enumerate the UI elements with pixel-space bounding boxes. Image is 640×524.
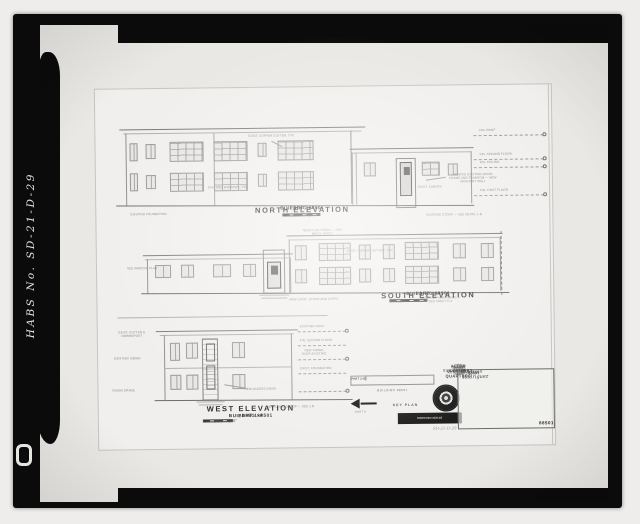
level-line: [298, 331, 346, 333]
window: [295, 245, 307, 260]
part-label: PART 1-A: [290, 205, 315, 210]
annotation: EXISTING WINDOWS, TYP.: [208, 186, 248, 190]
drawing-line: [118, 315, 328, 319]
window: [481, 243, 494, 258]
level-line: [299, 391, 347, 393]
level-label: FIN. ROOF: [479, 129, 495, 133]
datum-mark: [543, 164, 547, 168]
annotation: NEW FLUE STACK — SEE MECH. DWGS.: [303, 229, 343, 237]
window: [364, 162, 376, 176]
datum-mark: [345, 389, 349, 393]
door-pane: [404, 167, 410, 175]
window: [295, 269, 307, 283]
level-line: [473, 134, 543, 136]
datum-mark: [543, 156, 547, 160]
pencil-note: SD-21-D-29: [433, 425, 457, 430]
level-line: [298, 345, 346, 347]
annotation: REMOVE EXISTING DOOR, FRAME AND TRANSOM …: [448, 173, 498, 184]
part-label: PART 1-A: [416, 291, 441, 296]
window: [146, 175, 156, 189]
door-pane: [271, 266, 278, 275]
window: [232, 342, 245, 358]
datum-mark: [543, 192, 547, 196]
annotation: FIN. SECOND FLOOR: [300, 339, 332, 343]
annotation: SEE WINDOW PLAN: [127, 267, 157, 271]
window: [405, 266, 439, 284]
window: [383, 268, 395, 282]
window: [319, 267, 351, 285]
habs-number-text: HABS No. SD-21-D-29: [25, 172, 37, 338]
reproduction-stamp: REPRODUCED AT REDUCED SCALE: [398, 412, 462, 424]
window: [277, 140, 313, 160]
step-line: [261, 297, 287, 298]
part-label: PART 1-A: [238, 413, 263, 418]
annotation: EXIST. COPPER GUTTER, TYP.: [347, 249, 393, 253]
annotation: EXIST. COPPER GUTTER, TYP.: [248, 134, 294, 138]
window: [359, 268, 371, 282]
step-line: [197, 401, 225, 402]
annotation: EXIST. CANOPY: [418, 186, 442, 190]
level-line: [298, 359, 346, 361]
annotation: FINISH GRADE: [112, 389, 135, 393]
annotation: NEW ACCESS DOOR: [244, 388, 275, 392]
window: [170, 172, 204, 191]
key-plan-building-label: BUILDING 88501: [356, 388, 428, 393]
key-plan-part: PART 1-C: [351, 377, 365, 381]
sheet-number: 88501: [539, 420, 554, 425]
annotation: EXISTING FOUNDATION: [130, 213, 166, 217]
stack-panel: [206, 343, 215, 361]
door: [267, 262, 281, 289]
window: [186, 343, 198, 359]
window: [170, 375, 181, 390]
habs-number-label: HABS No. SD-21-D-29: [16, 72, 46, 438]
level-label: FIN. SECOND FLOOR: [480, 153, 512, 157]
graphic-scale-bar: [389, 298, 427, 301]
annotation: EXISTING SIDING: [114, 357, 141, 361]
window: [213, 141, 247, 161]
drawing-line: [350, 147, 474, 150]
ground-line: [155, 399, 353, 401]
door: [400, 162, 412, 196]
window: [170, 343, 180, 361]
match-line: [501, 231, 503, 295]
window: [169, 141, 203, 161]
graphic-scale-bar: [282, 213, 320, 216]
level-label: FIN. CEILING: [480, 161, 500, 165]
window: [145, 144, 155, 159]
level-label: FIN. FIRST FLOOR: [480, 189, 508, 193]
signature-row: E. Rodriguez: [458, 370, 462, 378]
window: [186, 375, 198, 390]
level-line: [474, 166, 544, 168]
window: [129, 143, 137, 161]
annotation: EXISTING ROOF: [300, 325, 325, 329]
window: [278, 171, 314, 190]
north-arrow-label: NORTH: [355, 411, 366, 414]
annotation: EXIST. GUTTER & DOWNSPOUT: [116, 331, 148, 339]
step-line: [259, 294, 289, 295]
window: [258, 174, 267, 187]
film-notch: [16, 444, 32, 466]
window: [243, 264, 256, 277]
datum-mark: [345, 357, 349, 361]
window: [405, 242, 439, 260]
window: [257, 143, 266, 157]
north-arrow-icon: [351, 399, 360, 409]
key-plan-strip: PART 1-A PART 1-B PART 1-C: [350, 375, 434, 386]
window: [213, 264, 231, 277]
window: [453, 243, 466, 258]
corps-of-engineers-seal: [432, 384, 459, 411]
key-plan-label: KEY PLAN: [393, 403, 419, 407]
level-line: [298, 373, 346, 375]
window: [453, 267, 466, 281]
window: [155, 265, 171, 278]
west-elevation-subtitle: BUILDING 88501 PART 1-A: [185, 412, 317, 414]
annotation: NEW SIDING OVER EXISTING: [300, 349, 328, 357]
chimney-stack: [202, 338, 219, 400]
stamp-text: REDUCED SCALE: [417, 416, 442, 420]
window: [130, 173, 138, 191]
drawing-sheet: FIN. ROOF FIN. SECOND FLOOR FIN. CEILING…: [94, 83, 556, 451]
annotation: NEW CONC. STOOP AND STEPS: [289, 298, 338, 302]
graphic-scale-bar: [203, 419, 233, 422]
drawing-line: [119, 126, 365, 130]
window: [422, 162, 440, 176]
annotation: EXIST. FOUNDATION: [300, 367, 331, 371]
datum-mark: [345, 329, 349, 333]
archival-photo: HABS No. SD-21-D-29: [0, 0, 640, 524]
level-line: [474, 158, 544, 160]
annotation: EXISTING STOOP — SEE DETAIL 1-B: [426, 213, 482, 217]
stack-panel: [206, 365, 215, 389]
signature: E. Rodriguez: [462, 368, 489, 381]
window: [181, 265, 194, 278]
level-line: [474, 194, 544, 196]
drawing-line: [156, 329, 298, 332]
north-arrow-icon: [361, 402, 377, 404]
datum-mark: [542, 132, 546, 136]
window: [481, 267, 494, 281]
